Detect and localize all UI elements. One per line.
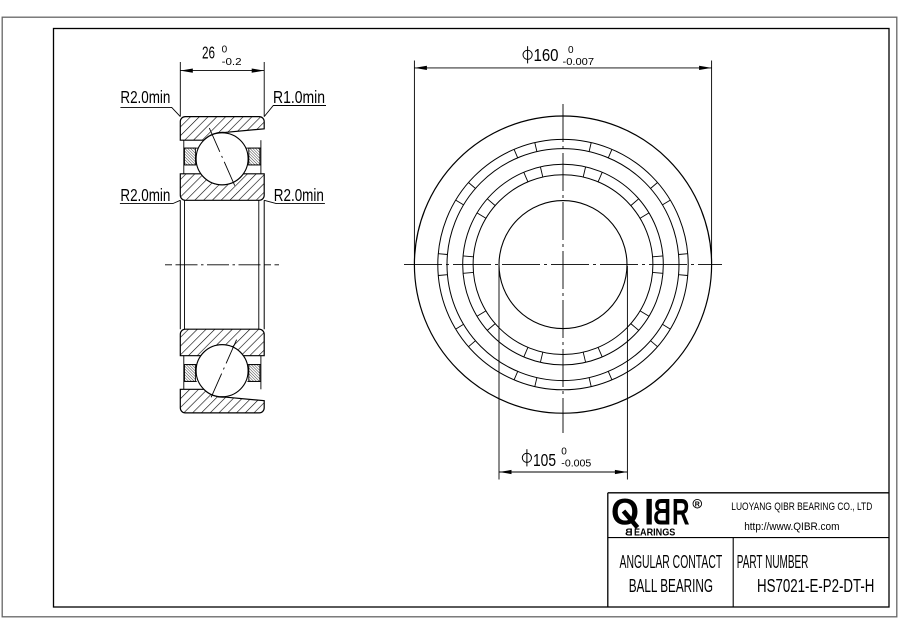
svg-text:26: 26: [202, 43, 215, 63]
svg-text:-0.2: -0.2: [222, 57, 243, 68]
svg-text:-0.005: -0.005: [561, 458, 591, 469]
svg-text:R1.0min: R1.0min: [273, 87, 325, 107]
svg-text:105: 105: [533, 450, 556, 470]
svg-text:0: 0: [561, 446, 567, 457]
svg-text:-0.007: -0.007: [563, 57, 595, 68]
svg-text:160: 160: [534, 45, 559, 65]
svg-text:0: 0: [222, 45, 228, 56]
svg-text:R: R: [695, 502, 700, 509]
svg-text:R2.0min: R2.0min: [120, 185, 170, 205]
svg-text:EARINGS: EARINGS: [634, 526, 675, 538]
svg-text:R2.0min: R2.0min: [274, 185, 324, 205]
svg-text:http://www.QIBR.com: http://www.QIBR.com: [744, 521, 839, 533]
svg-text:R2.0min: R2.0min: [120, 87, 170, 107]
svg-text:B: B: [625, 526, 633, 538]
svg-text:BALL BEARING: BALL BEARING: [629, 575, 713, 596]
svg-text:ANGULAR CONTACT: ANGULAR CONTACT: [620, 551, 723, 572]
svg-text:HS7021-E-P2-DT-H: HS7021-E-P2-DT-H: [757, 575, 874, 596]
svg-text:LUOYANG QIBR BEARING CO., LTD: LUOYANG QIBR BEARING CO., LTD: [731, 501, 872, 513]
svg-text:PART NUMBER: PART NUMBER: [737, 551, 809, 572]
svg-text:0: 0: [568, 45, 574, 56]
